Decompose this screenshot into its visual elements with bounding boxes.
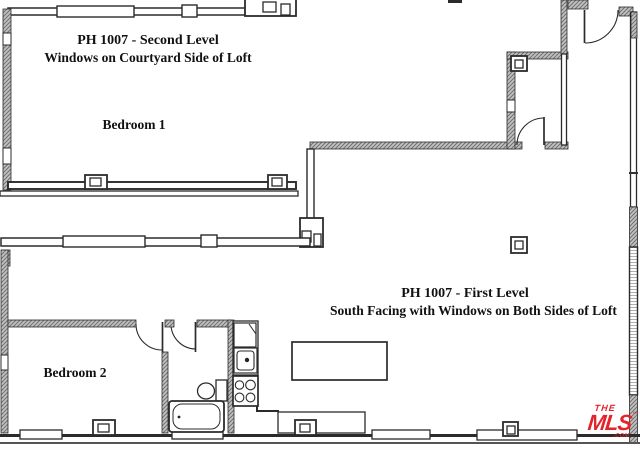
- window-icon: [201, 235, 217, 247]
- bathroom-wall: [162, 352, 168, 433]
- bedroom2-label: Bedroom 2: [0, 365, 150, 381]
- entry-wall: [568, 0, 588, 9]
- column-icon: [263, 2, 276, 12]
- bedroom2-wall: [165, 320, 174, 327]
- stair-wall: [561, 0, 567, 54]
- column-inner: [272, 178, 282, 186]
- second-level-title: PH 1007 - Second Level: [0, 33, 296, 49]
- burner: [246, 393, 255, 402]
- door-swing-icon: [517, 118, 544, 145]
- floor-plan-drawing: [0, 0, 640, 451]
- platform: [278, 412, 365, 433]
- burner: [235, 393, 244, 402]
- wall-stub: [448, 0, 462, 3]
- mls-logo-main: MLS™: [587, 412, 635, 434]
- trademark-symbol: ™: [632, 412, 639, 418]
- stair-partition: [562, 54, 567, 145]
- door-swing-icon: [136, 324, 162, 350]
- column-inner: [300, 424, 310, 432]
- door-swing-icon: [171, 324, 196, 349]
- window-icon: [3, 148, 11, 164]
- bathtub-drain: [178, 416, 181, 419]
- first-level-subtitle: South Facing with Windows on Both Sides …: [330, 303, 600, 319]
- bedroom2-wall: [8, 320, 136, 327]
- window-icon: [630, 247, 638, 395]
- right-exterior-wall: [629, 12, 638, 443]
- column-inner: [507, 426, 515, 434]
- second-level-subtitle: Windows on Courtyard Side of Loft: [0, 50, 296, 66]
- mezzanine-wall: [310, 142, 522, 149]
- window-wall: [1, 238, 310, 246]
- window-icon: [20, 430, 62, 439]
- burner: [246, 380, 256, 390]
- bedroom1-label: Bedroom 1: [0, 117, 268, 133]
- burner: [235, 381, 243, 389]
- column-inner: [515, 60, 523, 68]
- mezzanine-edge: [0, 191, 298, 196]
- door-swing-icon: [585, 10, 618, 43]
- window-icon: [63, 236, 145, 247]
- column-inner: [314, 234, 321, 246]
- kitchen-island-icon: [292, 342, 387, 380]
- window-icon: [372, 430, 430, 439]
- exterior-wall: [1, 250, 8, 433]
- window-icon: [477, 430, 577, 440]
- first-level-walls: [0, 235, 640, 444]
- first-level-title: PH 1007 - First Level: [330, 286, 600, 302]
- mls-logo: THE MLS™ .COM: [586, 404, 636, 440]
- window-icon: [507, 100, 515, 112]
- floor-plan: PH 1007 - Second Level Windows on Courty…: [0, 0, 640, 451]
- column-icon: [281, 4, 290, 15]
- sink-drain: [245, 358, 249, 362]
- refrigerator-icon: [234, 323, 256, 347]
- south-wall-edge: [0, 442, 640, 444]
- column-inner: [90, 178, 101, 186]
- toilet-bowl: [198, 383, 215, 399]
- connector-wall: [307, 149, 314, 219]
- window-icon: [57, 6, 134, 17]
- column-inner: [98, 424, 109, 432]
- counter-return: [256, 410, 279, 412]
- toilet-icon: [216, 380, 227, 401]
- window-icon: [182, 5, 197, 17]
- bathroom-wall: [197, 320, 231, 327]
- bedroom1-south-wall: [8, 182, 296, 189]
- column-inner: [515, 241, 523, 249]
